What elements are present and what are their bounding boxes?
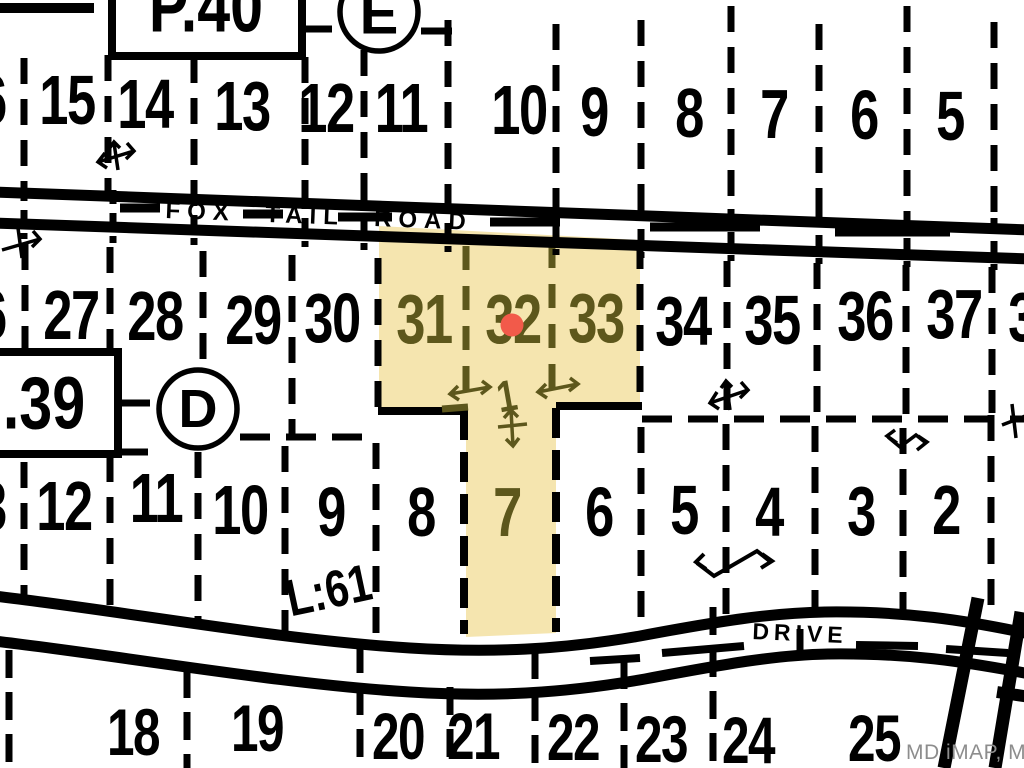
parcel-bot-3[interactable]: 21 xyxy=(447,698,499,768)
parcel-low-11[interactable]: 2 xyxy=(932,470,960,550)
block-letter-d: D xyxy=(179,378,218,440)
parcel-bot-5[interactable]: 23 xyxy=(635,701,687,768)
parcel-top-5[interactable]: 11 xyxy=(375,68,428,148)
parcel-mid-8[interactable]: 34 xyxy=(655,281,710,361)
parcel-mid-5-highlighted[interactable]: 31 xyxy=(396,279,451,359)
parcel-bot-2[interactable]: 20 xyxy=(372,698,424,768)
parcel-top-3[interactable]: 13 xyxy=(214,66,269,146)
parcel-mid-11[interactable]: 37 xyxy=(926,274,981,354)
block-letter-e: E xyxy=(360,0,399,48)
parcel-low-10[interactable]: 3 xyxy=(847,471,875,551)
parcel-mid-0[interactable]: 6 xyxy=(0,275,6,355)
parcel-top-4[interactable]: 12 xyxy=(298,68,353,148)
survey-arrow-top-left xyxy=(98,142,134,170)
parcel-mid-7-highlighted[interactable]: 33 xyxy=(568,278,623,358)
parcel-low-5[interactable]: 8 xyxy=(407,472,435,552)
parcel-bot-7[interactable]: 25 xyxy=(848,700,900,768)
plat-map-viewport: 6 15 14 13 12 11 10 9 8 7 6 5 6 27 28 29… xyxy=(0,0,1024,768)
map-attribution-watermark: MD iMAP, MDP xyxy=(906,741,1024,765)
parcel-low-0[interactable]: 3 xyxy=(0,466,6,546)
parcel-top-2[interactable]: 14 xyxy=(117,64,172,144)
parcel-low-7[interactable]: 6 xyxy=(585,472,613,552)
parcel-mid-1[interactable]: 27 xyxy=(43,275,98,355)
parcel-low-3[interactable]: 10 xyxy=(212,470,267,550)
parcel-top-7[interactable]: 9 xyxy=(580,72,608,152)
parcel-low-1[interactable]: 12 xyxy=(36,466,91,546)
parcel-bot-6[interactable]: 24 xyxy=(722,702,774,768)
parcel-mid-9[interactable]: 35 xyxy=(744,280,799,360)
parcel-low-2[interactable]: 11 xyxy=(130,458,183,538)
parcel-top-6[interactable]: 10 xyxy=(491,70,546,150)
parcel-top-9[interactable]: 7 xyxy=(760,74,788,154)
parcel-mid-4[interactable]: 30 xyxy=(304,278,359,358)
zigzag-mark-middle xyxy=(887,430,927,450)
parcel-top-8[interactable]: 8 xyxy=(675,73,703,153)
parcel-bot-1[interactable]: 19 xyxy=(231,690,283,766)
plat-ref-p40: P.40 xyxy=(149,0,263,49)
corner-road-stub xyxy=(997,692,1024,697)
parcel-mid-6-selected[interactable]: 32 xyxy=(485,279,540,359)
parcel-mid-3[interactable]: 29 xyxy=(225,280,280,360)
parcel-bot-0[interactable]: 18 xyxy=(107,694,159,768)
parcel-low-9[interactable]: 4 xyxy=(755,472,783,552)
parcel-low-4[interactable]: 9 xyxy=(317,472,345,552)
survey-arrow-mid-right xyxy=(710,381,748,410)
parcel-low-8[interactable]: 5 xyxy=(670,470,698,550)
zigzag-mark-lower xyxy=(696,551,772,576)
parcel-top-1[interactable]: 15 xyxy=(39,60,94,140)
parcel-top-11[interactable]: 5 xyxy=(936,76,964,156)
highlight-dash-mark xyxy=(442,407,468,409)
parcel-mid-2[interactable]: 28 xyxy=(127,276,182,356)
parcel-low-6-highlighted[interactable]: 7 xyxy=(493,472,521,552)
parcel-mid-10[interactable]: 36 xyxy=(837,276,892,356)
parcel-bot-4[interactable]: 22 xyxy=(547,699,599,768)
bottom-road-name: DRIVE xyxy=(752,618,848,649)
parcel-top-10[interactable]: 6 xyxy=(850,75,878,155)
parcel-mid-12[interactable]: 3 xyxy=(1008,277,1024,357)
survey-arrow-left-edge xyxy=(2,228,40,258)
parcel-top-0[interactable]: 6 xyxy=(0,60,6,140)
plat-ref-39: .39 xyxy=(3,361,85,446)
